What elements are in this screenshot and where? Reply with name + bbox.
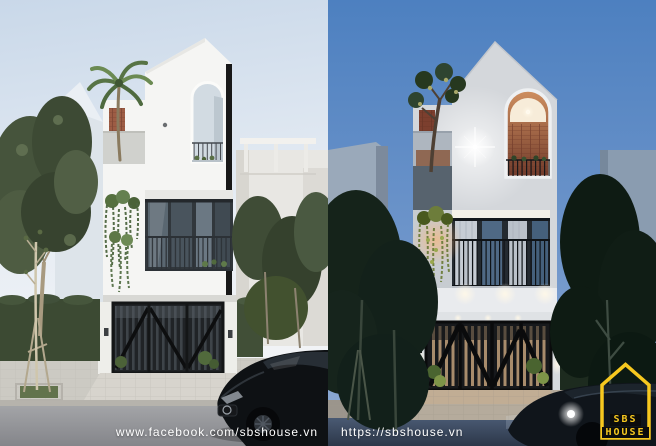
website-url-watermark: https://sbshouse.vn	[341, 425, 463, 439]
logo-text-house: HOUSE	[602, 427, 648, 439]
night-car-headlight	[567, 410, 575, 418]
night-wall-lamp	[455, 127, 495, 167]
sbs-house-logo: SBS HOUSE	[598, 362, 653, 441]
day-security-camera	[163, 123, 167, 127]
night-gate-floor1	[413, 312, 564, 392]
panel-night-render: https://sbshouse.vn SBS HOUSE	[328, 0, 656, 446]
logo-text-sbs: SBS	[610, 414, 640, 426]
day-balcony-floor2	[145, 190, 233, 270]
day-scene-illustration	[0, 0, 328, 446]
day-night-house-render: www.facebook.com/sbshouse.vn	[0, 0, 656, 446]
logo-text-block: SBS HOUSE	[598, 414, 653, 438]
night-balcony-floor2	[452, 210, 550, 288]
night-arched-window	[506, 90, 550, 177]
day-gate-floor1	[98, 302, 237, 374]
day-arched-window	[192, 82, 223, 162]
panel-day-render: www.facebook.com/sbshouse.vn	[0, 0, 328, 446]
facebook-url-watermark: www.facebook.com/sbshouse.vn	[116, 425, 318, 439]
